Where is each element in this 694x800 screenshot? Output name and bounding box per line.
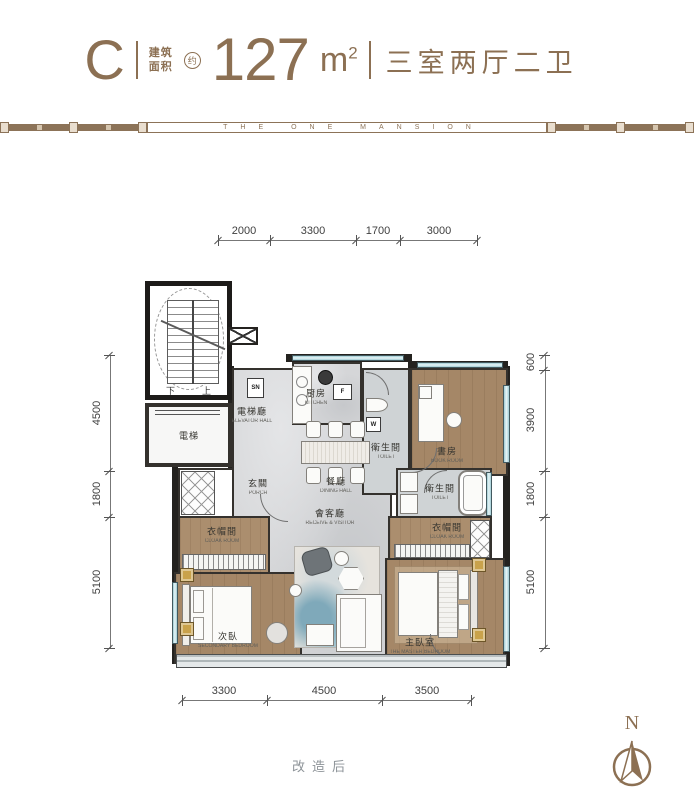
- header: C 建筑 面积 约 127 m2 三室两厅二卫: [0, 30, 678, 90]
- desk-plant: [419, 386, 432, 399]
- room-label-living: 會客廳 RECEIVE & VISITOR: [301, 508, 359, 527]
- dim-tick: [471, 695, 472, 706]
- band-title: THE ONE MANSION: [147, 122, 547, 133]
- header-divider: [369, 41, 371, 79]
- room-label-toilet-b: 衛生間 TOILET: [425, 483, 455, 502]
- band-bar: [9, 124, 69, 131]
- band-square: [616, 122, 625, 133]
- dim-label: 5100: [91, 570, 103, 594]
- floor-plan-page: C 建筑 面积 约 127 m2 三室两厅二卫 THE ONE MANSION …: [0, 0, 694, 800]
- room-label-en: SECONDARY BEDROOM: [198, 644, 258, 651]
- dim-label: 1800: [91, 482, 103, 506]
- dim-tick: [539, 648, 550, 649]
- dim-tick: [104, 355, 115, 356]
- room-label-cloak-left: 衣帽間 CLOAK ROOM: [202, 526, 243, 545]
- dim-line-right: [545, 355, 546, 648]
- dim-tick: [104, 517, 115, 518]
- toilet-fixture: [366, 398, 388, 412]
- band-bar: [556, 124, 616, 131]
- pillow: [458, 574, 469, 600]
- duct-shaft: [228, 327, 258, 345]
- dim-label: 4500: [91, 401, 103, 425]
- room-label-zh: 餐廳: [317, 476, 355, 488]
- stairwell: 下 上: [145, 281, 232, 400]
- dim-label: 2000: [232, 225, 256, 237]
- elevator-doors: [155, 410, 220, 415]
- room-label-zh: 電梯廳: [228, 406, 276, 418]
- decorative-band: THE ONE MANSION: [0, 122, 694, 133]
- room-label-zh: 玄關: [247, 478, 269, 490]
- room-label-zh: 會客廳: [301, 508, 359, 520]
- dim-line-bottom: [182, 700, 472, 701]
- nightstand: [180, 568, 194, 582]
- compass-north-label: N: [606, 712, 658, 735]
- area-caption: 建筑 面积: [149, 46, 173, 75]
- sn-tag: SN: [247, 378, 264, 398]
- desk-chair: [446, 412, 462, 428]
- window: [417, 362, 503, 368]
- nightstand: [472, 628, 486, 642]
- dim-tick: [104, 471, 115, 472]
- room-label-en: CLOAK ROOM: [430, 535, 465, 542]
- room-label-zh: 主臥室: [384, 637, 455, 649]
- blanket: [398, 572, 438, 636]
- balcony-window-band: [176, 654, 507, 668]
- bed: [438, 570, 458, 638]
- room-label-en: PORCH: [249, 491, 267, 498]
- dim-tick: [539, 355, 550, 356]
- dim-tick: [539, 471, 550, 472]
- area-caption-line2: 面积: [149, 60, 173, 74]
- dim-line-left: [110, 355, 111, 648]
- closet-lattice: [470, 520, 490, 558]
- dim-tick: [539, 517, 550, 518]
- washer-tag: W: [366, 417, 381, 432]
- dim-tick: [539, 370, 550, 371]
- sink-basin: [296, 376, 308, 388]
- dim-tick: [218, 235, 219, 246]
- wardrobe: [182, 554, 266, 570]
- room-label-zh: 電梯: [179, 431, 199, 443]
- compass-icon: [607, 735, 657, 791]
- room-label-zh: 書房: [428, 446, 466, 458]
- fridge-tag: F: [333, 384, 352, 400]
- closet-lattice: [181, 471, 215, 515]
- dim-label: 3300: [212, 685, 236, 697]
- dining-chair: [328, 421, 343, 438]
- room-label-zh: 衛生間: [371, 442, 401, 454]
- room-label-porch: 玄關 PORCH: [247, 478, 269, 497]
- bathtub: [458, 470, 488, 516]
- dim-label: 1800: [525, 482, 537, 506]
- room-label-en: RECEIVE & VISITOR: [306, 521, 355, 528]
- room-label-master-bedroom: 主臥室 THE MASTER BEDROOM: [384, 637, 455, 656]
- dim-line-top: [218, 240, 478, 241]
- sink: [400, 494, 418, 514]
- band-square: [685, 122, 694, 133]
- window: [292, 355, 404, 361]
- room-label-zh: 衣帽間: [202, 526, 243, 538]
- compass: N: [606, 712, 658, 796]
- window: [503, 566, 510, 652]
- dim-tick: [400, 235, 401, 246]
- stair-down-label: 下: [166, 384, 175, 397]
- area-unit-sup: 2: [348, 44, 357, 63]
- window: [172, 582, 178, 644]
- dim-label: 600: [525, 353, 537, 371]
- room-label-elevator: 電梯: [179, 431, 199, 443]
- room-label-en: DINING HALL: [320, 489, 352, 496]
- chaise: [306, 624, 334, 646]
- window: [486, 472, 492, 516]
- room-label-en: ELEVATOR HALL: [232, 419, 273, 426]
- dim-tick: [477, 235, 478, 246]
- dim-label: 4500: [312, 685, 336, 697]
- dim-tick: [270, 235, 271, 246]
- stair-up-label: 上: [202, 384, 211, 397]
- area-caption-line1: 建筑: [149, 46, 173, 60]
- side-table: [289, 584, 302, 597]
- room-label-zh: 衛生間: [425, 483, 455, 495]
- dim-label: 5100: [525, 570, 537, 594]
- room-label-en: KITCHEN: [305, 401, 327, 408]
- band-bar: [78, 124, 138, 131]
- area-number: 127: [212, 30, 309, 90]
- renovation-note: 改造后: [0, 756, 669, 775]
- room-label-secondary-bedroom: 次臥 SECONDARY BEDROOM: [193, 631, 263, 650]
- room-label-book-room: 書房 BOOK ROOM: [428, 446, 466, 465]
- dim-tick: [267, 695, 268, 706]
- sink: [400, 472, 418, 492]
- dim-label: 1700: [366, 225, 390, 237]
- dining-chair: [350, 421, 365, 438]
- room-label-toilet-a: 衛生間 TOILET: [371, 442, 401, 461]
- dim-tick: [356, 235, 357, 246]
- wardrobe: [394, 544, 470, 558]
- dim-tick: [182, 695, 183, 706]
- room-label-en: THE MASTER BEDROOM: [390, 650, 451, 657]
- nightstand: [472, 558, 486, 572]
- dim-label: 3900: [525, 408, 537, 432]
- band-square: [0, 122, 9, 133]
- room-label-en: TOILET: [373, 455, 399, 462]
- band-bar: [625, 124, 685, 131]
- band-square: [547, 122, 556, 133]
- room-label-elevator-hall: 電梯廳 ELEVATOR HALL: [228, 406, 276, 425]
- room-label-cloak-right: 衣帽間 CLOAK ROOM: [427, 522, 468, 541]
- range-hood: [318, 370, 333, 385]
- area-unit: m2: [320, 43, 358, 77]
- dim-label: 3300: [301, 225, 325, 237]
- layout-label: 三室两厅二卫: [386, 41, 578, 80]
- room-label-zh: 衣帽間: [427, 522, 468, 534]
- room-label-dining: 餐廳 DINING HALL: [317, 476, 355, 495]
- room-label-zh: 厨房: [303, 388, 329, 400]
- dining-table: [301, 441, 370, 464]
- approx-badge: 约: [184, 52, 201, 69]
- header-divider: [136, 41, 138, 79]
- pillow: [193, 590, 204, 613]
- ottoman: [334, 551, 349, 566]
- dim-label: 3000: [427, 225, 451, 237]
- pillow: [458, 604, 469, 630]
- room-label-en: CLOAK ROOM: [205, 539, 240, 546]
- band-square: [138, 122, 147, 133]
- area-unit-m: m: [320, 41, 348, 79]
- band-square: [69, 122, 78, 133]
- window: [503, 385, 510, 463]
- room-label-zh: 次臥: [193, 631, 263, 643]
- sofa-cushions: [340, 598, 366, 648]
- room-label-en: TOILET: [427, 496, 453, 503]
- dining-chair: [306, 421, 321, 438]
- unit-type-label: C: [84, 32, 124, 88]
- headboard: [182, 584, 190, 646]
- dim-label: 3500: [415, 685, 439, 697]
- dim-tick: [382, 695, 383, 706]
- stair-rail: [192, 300, 194, 384]
- leisure-table: [266, 622, 288, 644]
- room-label-en: BOOK ROOM: [431, 459, 463, 466]
- room-label-kitchen: 厨房 KITCHEN: [303, 388, 329, 407]
- dim-tick: [104, 648, 115, 649]
